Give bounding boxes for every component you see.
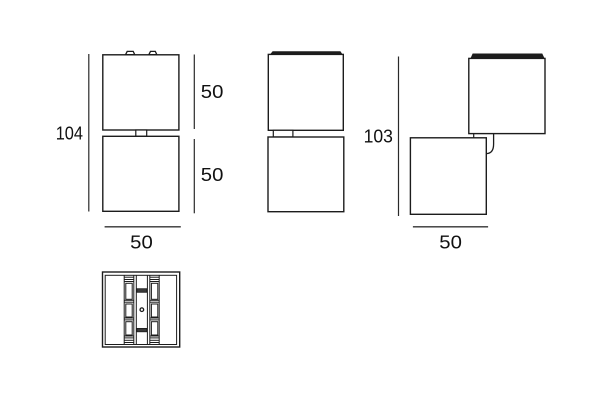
svg-text:103: 103 <box>364 126 393 147</box>
svg-text:50: 50 <box>439 232 462 253</box>
svg-text:50: 50 <box>201 164 224 185</box>
svg-text:50: 50 <box>201 81 224 102</box>
svg-text:104: 104 <box>56 123 83 144</box>
svg-text:50: 50 <box>130 231 153 252</box>
